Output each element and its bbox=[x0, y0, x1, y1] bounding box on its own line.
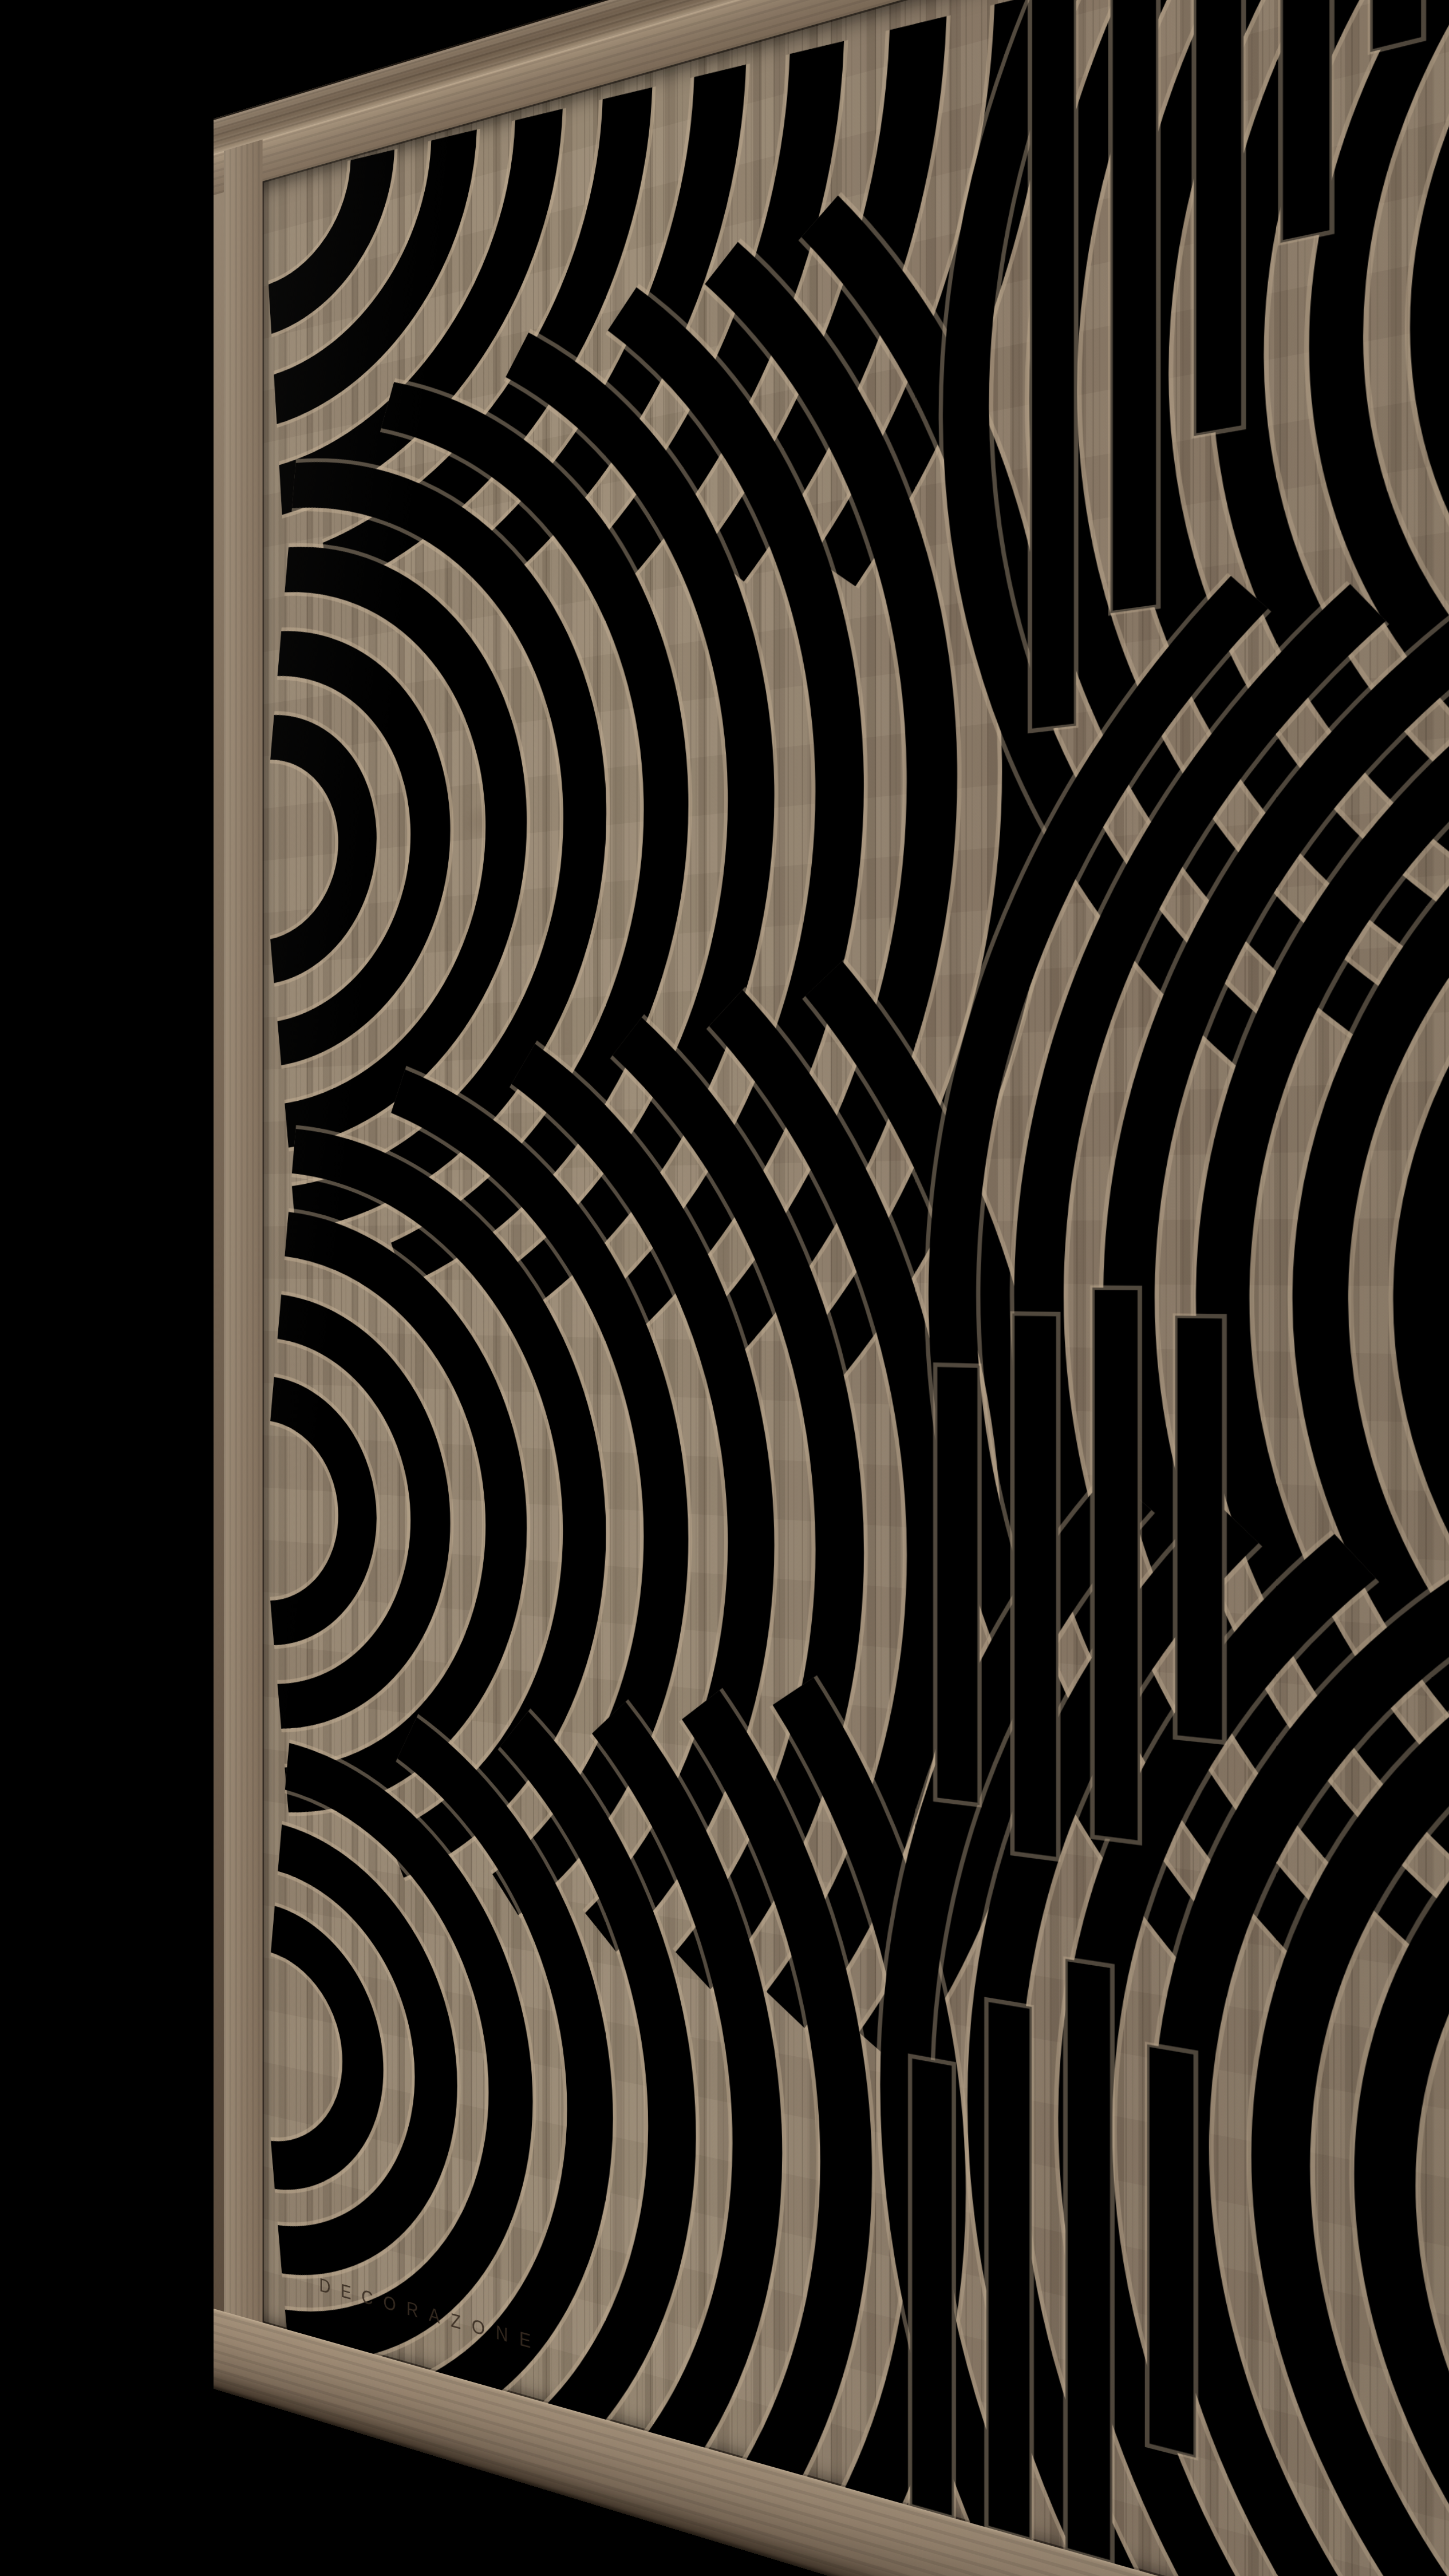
pattern-board: DECORAZONE bbox=[263, 0, 1449, 2576]
frame-left-side-face bbox=[214, 115, 225, 2392]
wood-panel: DECORAZONE bbox=[214, 0, 1449, 2576]
frame-left-stile bbox=[224, 140, 263, 2404]
panel-front-face: DECORAZONE bbox=[214, 0, 1449, 2576]
arc-pattern-svg: DECORAZONE bbox=[263, 0, 1449, 2576]
render-stage: DECORAZONE bbox=[0, 0, 1449, 2576]
perspective-scene: DECORAZONE bbox=[0, 0, 1449, 2576]
